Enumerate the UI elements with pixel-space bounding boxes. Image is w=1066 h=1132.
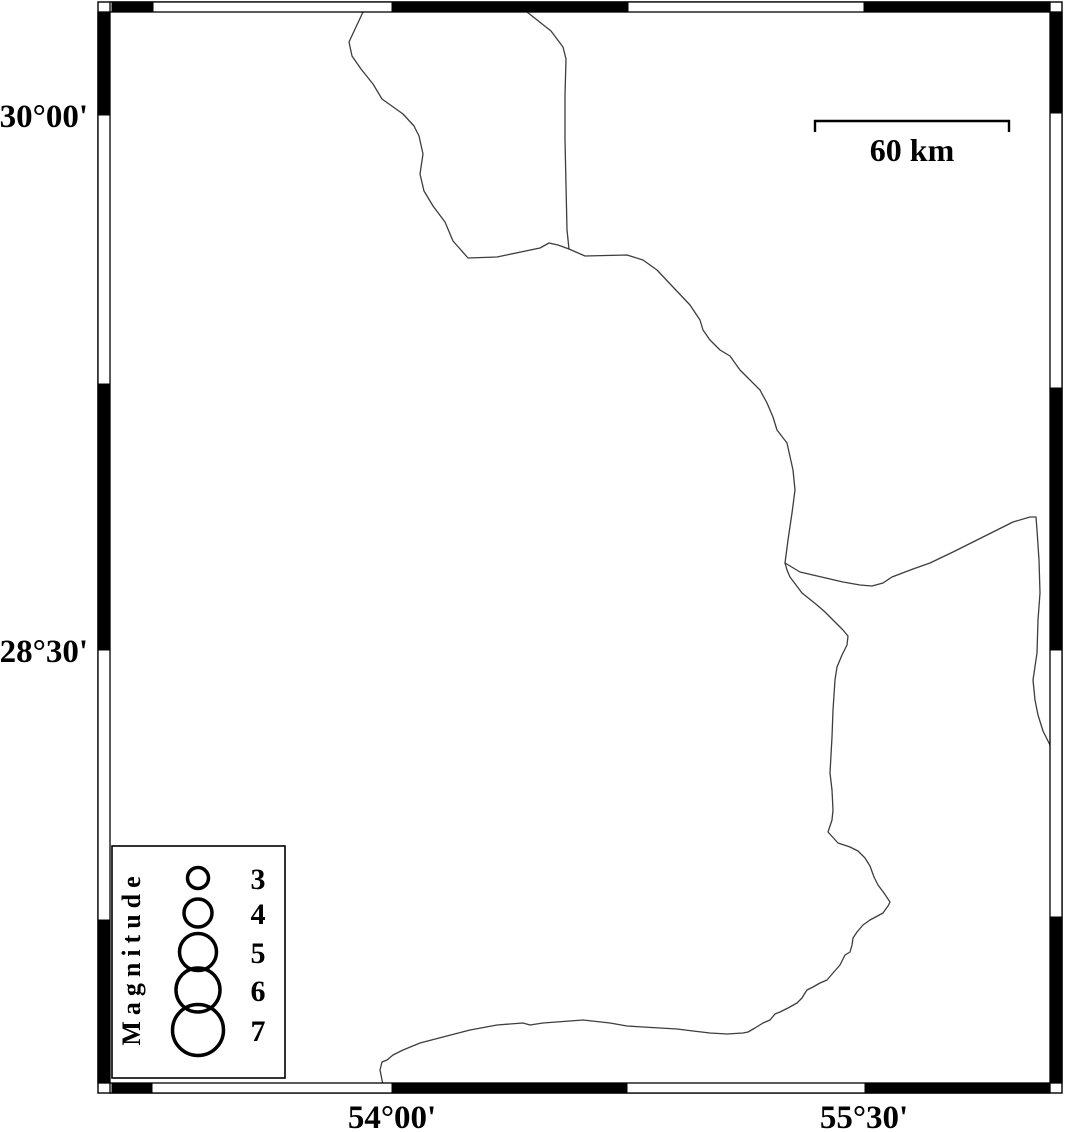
frame-black-segment	[1050, 12, 1062, 113]
legend-magnitude-value: 4	[251, 898, 266, 931]
magnitude-legend: Magnitude34567	[112, 846, 285, 1078]
latitude-label: 28°30'	[0, 634, 88, 670]
seismicity-base-map: 30°00'28°30'54°00'55°30'60 kmMagnitude34…	[0, 0, 1066, 1132]
longitude-label: 54°00'	[348, 1100, 436, 1132]
longitude-label: 55°30'	[820, 1100, 908, 1132]
legend-magnitude-value: 7	[251, 1015, 266, 1048]
map-svg: 30°00'28°30'54°00'55°30'60 kmMagnitude34…	[0, 0, 1066, 1132]
scale-bar-label: 60 km	[870, 132, 955, 168]
frame-black-segment	[1050, 917, 1062, 1083]
legend-magnitude-value: 6	[251, 975, 266, 1008]
frame-black-segment	[112, 1083, 152, 1093]
frame-black-segment	[1050, 388, 1062, 650]
frame-black-segment	[392, 1083, 627, 1093]
legend-title: Magnitude	[117, 870, 146, 1045]
frame-black-segment	[112, 2, 153, 12]
legend-magnitude-value: 3	[251, 863, 266, 896]
frame-black-segment	[865, 1083, 1050, 1093]
frame-black-segment	[864, 2, 1050, 12]
frame-black-segment	[98, 384, 110, 650]
frame-black-segment	[98, 12, 110, 115]
latitude-label: 30°00'	[0, 99, 88, 135]
frame-black-segment	[98, 920, 110, 1083]
frame-black-segment	[392, 2, 628, 12]
legend-magnitude-value: 5	[251, 937, 266, 970]
